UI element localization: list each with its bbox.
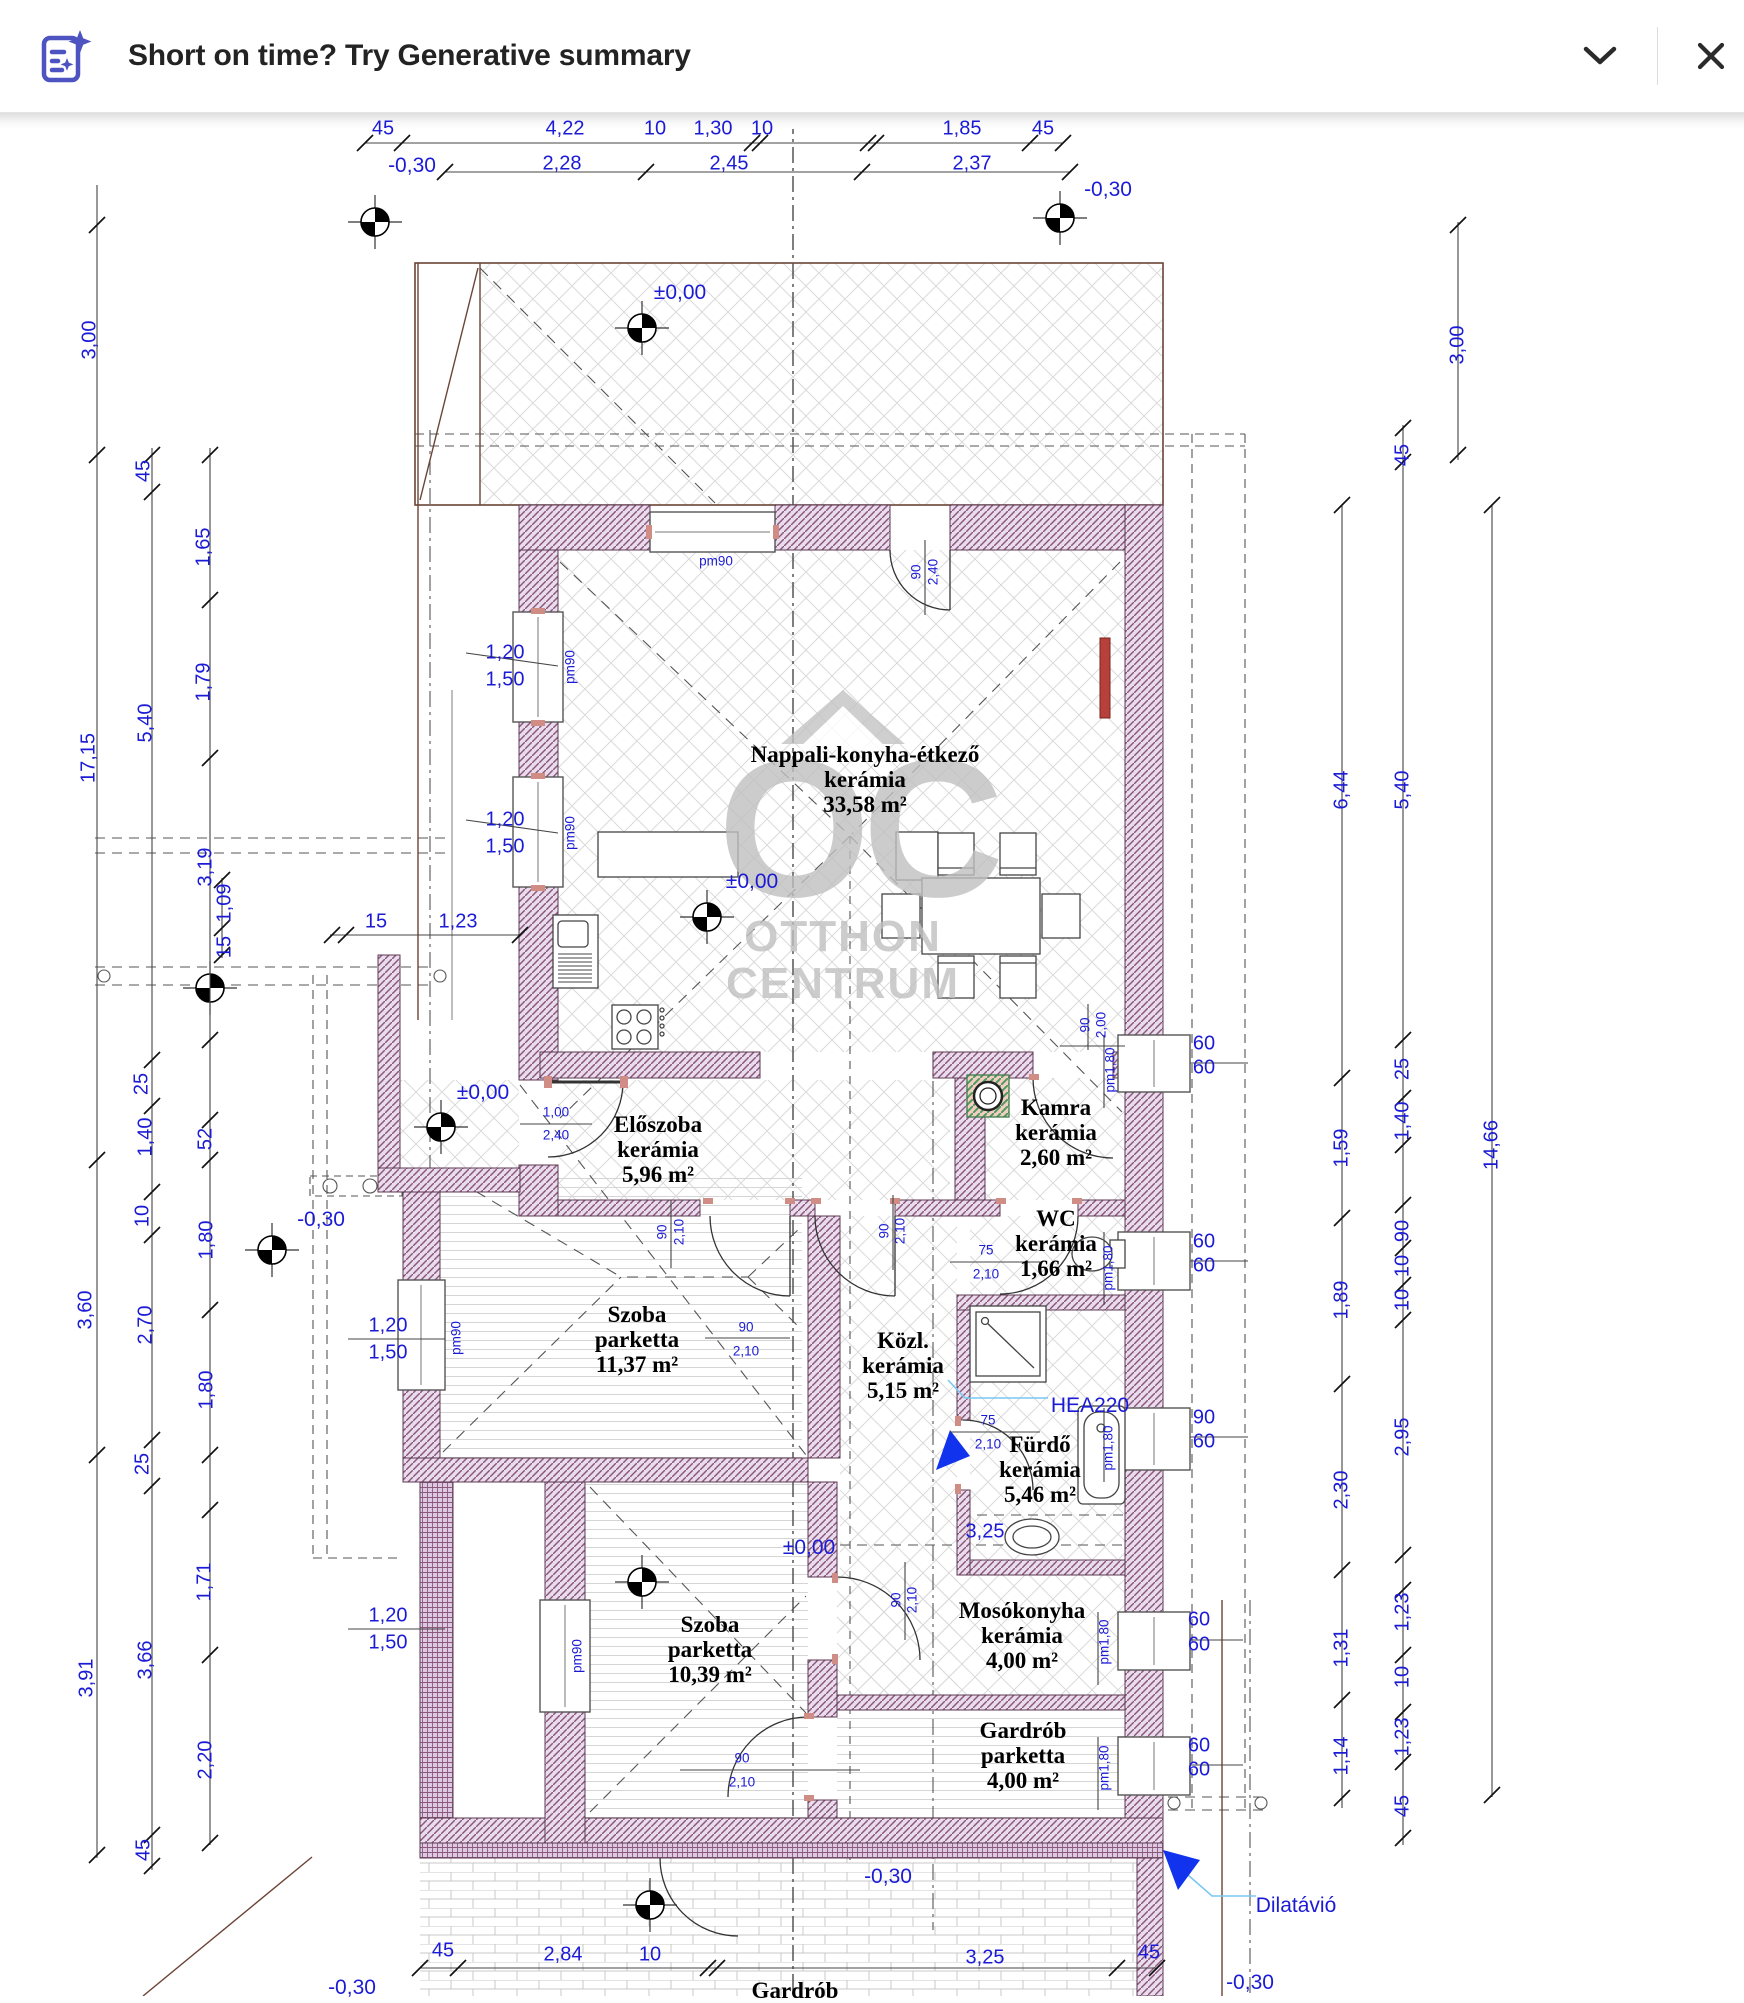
terrace-floor	[480, 263, 1163, 505]
living-room-floor	[558, 550, 1125, 1052]
washbasin-icon	[1005, 1519, 1059, 1555]
close-icon[interactable]	[1684, 29, 1738, 83]
paved-apron	[420, 1858, 1163, 1996]
bedroom2-floor	[585, 1482, 808, 1818]
shower-icon	[970, 1306, 1046, 1382]
toilet-icon	[1072, 1237, 1125, 1271]
radiator	[1100, 638, 1110, 718]
stove-icon	[612, 1005, 664, 1049]
chevron-down-icon[interactable]	[1573, 29, 1627, 83]
generative-summary-banner: Short on time? Try Generative summary	[0, 0, 1744, 113]
banner-divider	[1657, 27, 1658, 85]
floor-plan-drawing	[0, 0, 1744, 1996]
dilatation-arrow	[1163, 1850, 1200, 1890]
generative-summary-icon	[40, 28, 92, 84]
boiler	[967, 1075, 1009, 1117]
banner-title: Short on time? Try Generative summary	[128, 39, 691, 73]
bathtub-icon	[1078, 1406, 1125, 1504]
page-top-shade	[0, 113, 1744, 129]
